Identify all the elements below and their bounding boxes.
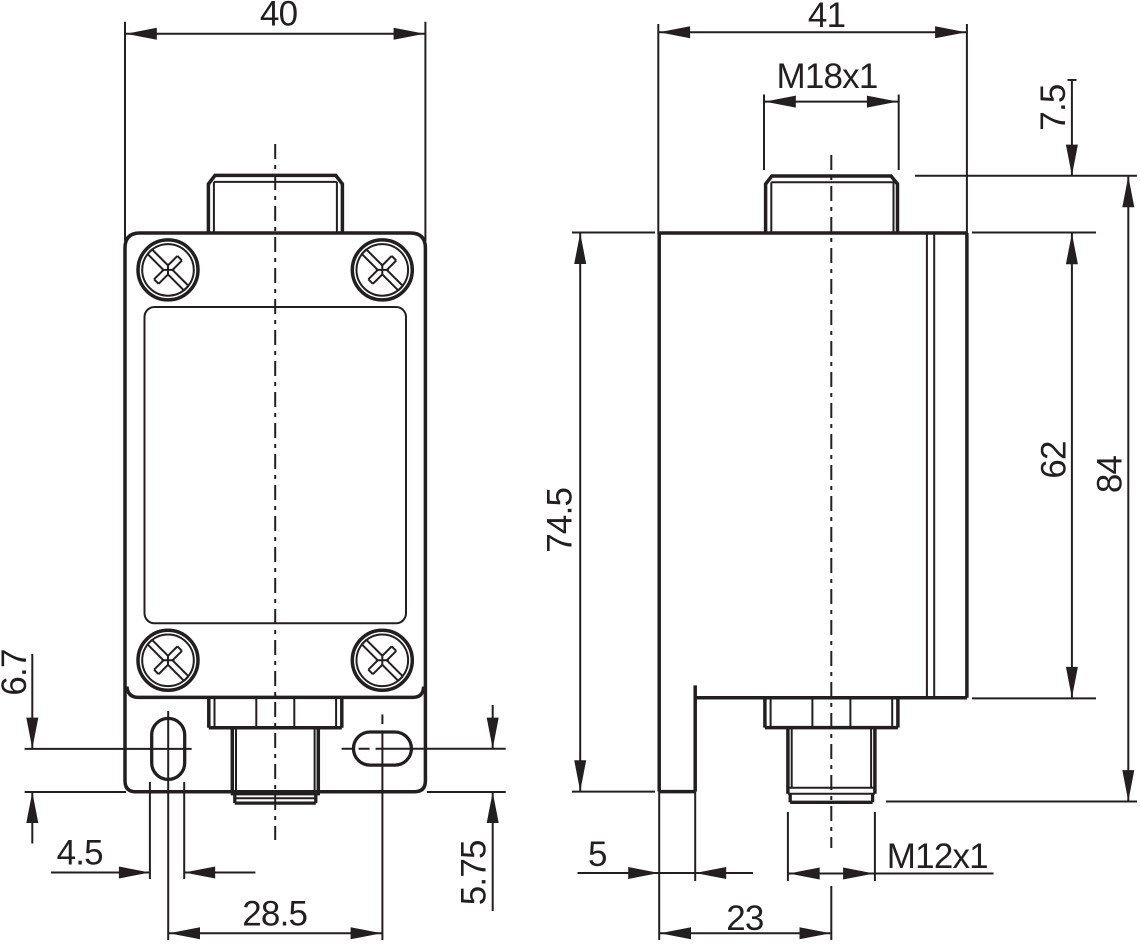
svg-text:40: 40 (260, 0, 298, 33)
svg-text:62: 62 (1035, 441, 1074, 478)
svg-text:5.75: 5.75 (455, 840, 494, 905)
svg-text:7.5: 7.5 (1034, 84, 1073, 130)
svg-text:74.5: 74.5 (541, 488, 580, 553)
svg-text:6.7: 6.7 (0, 649, 34, 695)
svg-text:M12x1: M12x1 (887, 837, 988, 876)
svg-text:5: 5 (588, 835, 607, 874)
svg-text:41: 41 (808, 0, 845, 35)
svg-text:M18x1: M18x1 (776, 57, 877, 96)
svg-text:84: 84 (1090, 456, 1129, 494)
svg-text:23: 23 (726, 899, 763, 938)
svg-text:28.5: 28.5 (242, 895, 307, 934)
svg-text:4.5: 4.5 (57, 833, 103, 872)
